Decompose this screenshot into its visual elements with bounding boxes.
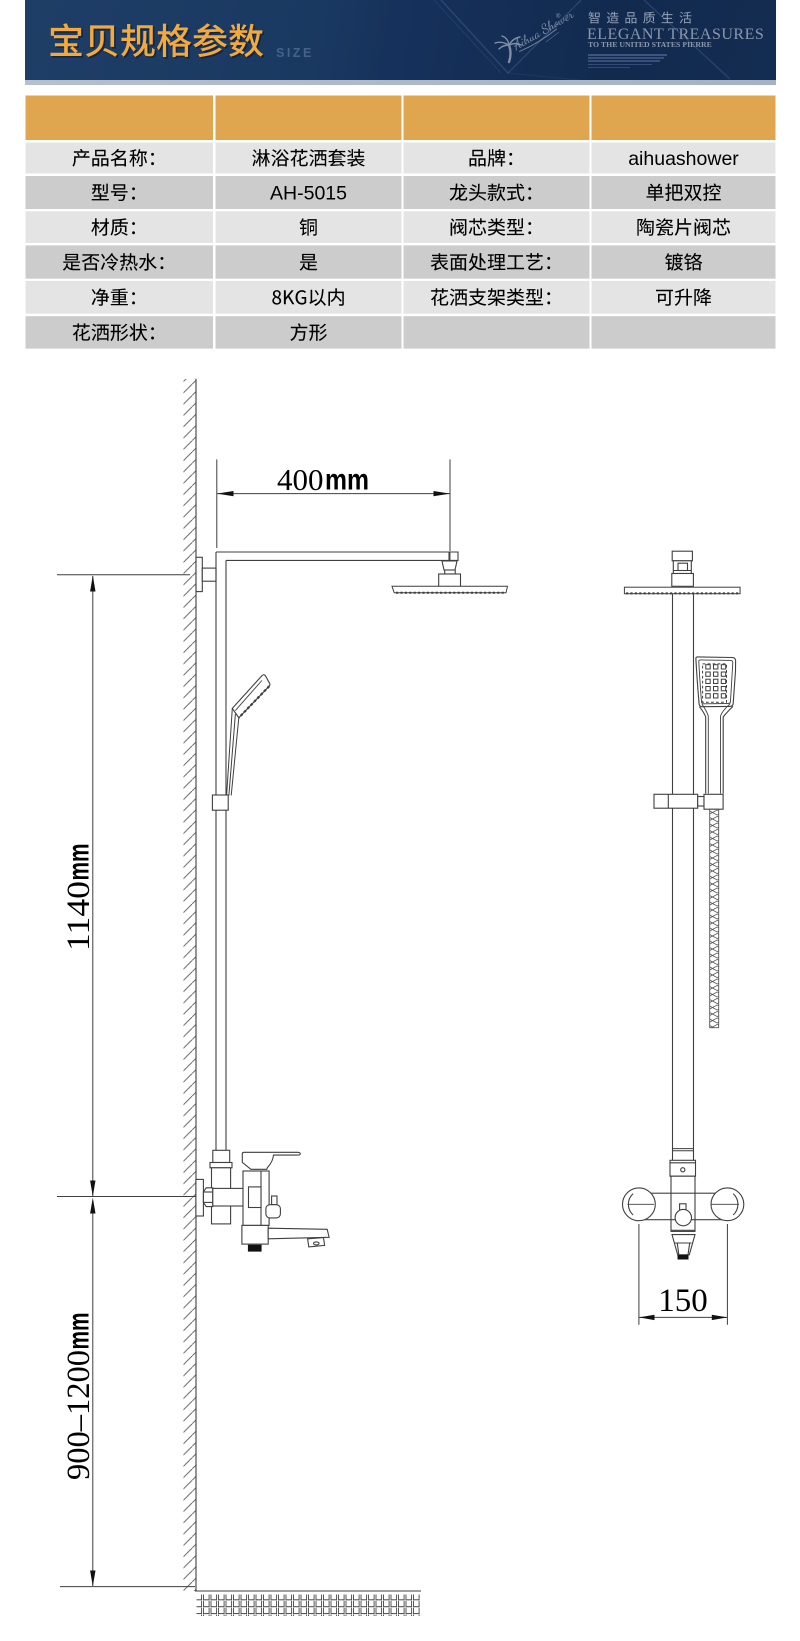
svg-text:400: 400 (277, 462, 324, 497)
svg-text:900–1200: 900–1200 (61, 1350, 97, 1480)
svg-text:mm: mm (63, 844, 96, 881)
svg-text:mm: mm (325, 464, 369, 497)
svg-text:aihuashower: aihuashower (628, 148, 739, 170)
svg-text:AH-5015: AH-5015 (270, 183, 347, 205)
svg-text:mm: mm (63, 1313, 96, 1350)
svg-text:1140: 1140 (61, 881, 97, 951)
svg-text:150: 150 (658, 1283, 708, 1319)
